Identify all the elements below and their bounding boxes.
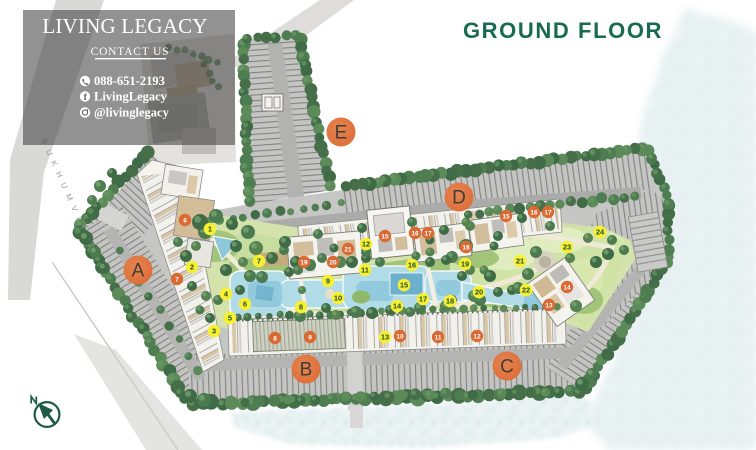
svg-text:GROUND FLOOR: GROUND FLOOR: [463, 18, 663, 43]
svg-text:15: 15: [502, 213, 510, 220]
svg-text:7: 7: [257, 257, 261, 266]
svg-text:12: 12: [473, 333, 481, 340]
svg-text:15: 15: [381, 233, 389, 240]
svg-text:11: 11: [361, 266, 369, 275]
svg-text:14: 14: [393, 302, 402, 311]
svg-text:088-651-2193: 088-651-2193: [94, 74, 165, 88]
svg-text:9: 9: [326, 277, 330, 286]
svg-text:21: 21: [516, 257, 524, 266]
svg-text:15: 15: [400, 281, 408, 290]
svg-text:LIVING LEGACY: LIVING LEGACY: [42, 14, 207, 38]
svg-text:21: 21: [344, 246, 352, 253]
svg-text:13: 13: [545, 302, 553, 309]
svg-text:13: 13: [381, 333, 389, 342]
svg-text:8: 8: [299, 303, 303, 312]
svg-text:19: 19: [461, 260, 469, 269]
svg-text:6: 6: [183, 217, 187, 224]
svg-text:9: 9: [308, 334, 312, 341]
svg-text:16: 16: [411, 230, 419, 237]
svg-text:1: 1: [208, 225, 212, 234]
svg-text:10: 10: [334, 294, 342, 303]
svg-text:18: 18: [462, 244, 470, 251]
svg-text:B: B: [300, 360, 313, 381]
svg-text:6: 6: [243, 300, 247, 309]
svg-text:12: 12: [362, 240, 370, 249]
svg-text:14: 14: [563, 284, 571, 291]
svg-text:LivingLegacy: LivingLegacy: [94, 90, 168, 104]
svg-text:5: 5: [228, 314, 232, 323]
svg-text:18: 18: [446, 297, 454, 306]
svg-text:CONTACT US: CONTACT US: [91, 46, 170, 58]
svg-text:17: 17: [544, 209, 552, 216]
svg-text:17: 17: [419, 295, 427, 304]
svg-text:20: 20: [329, 259, 337, 266]
svg-text:D: D: [452, 188, 466, 209]
svg-text:24: 24: [596, 228, 605, 237]
svg-text:22: 22: [522, 286, 530, 295]
svg-text:3: 3: [212, 327, 216, 336]
svg-text:19: 19: [300, 259, 308, 266]
svg-text:2: 2: [190, 263, 194, 272]
svg-text:10: 10: [396, 333, 404, 340]
svg-text:7: 7: [175, 276, 179, 283]
svg-text:11: 11: [435, 334, 442, 341]
svg-text:A: A: [132, 261, 145, 282]
svg-text:20: 20: [475, 288, 483, 297]
svg-text:8: 8: [273, 335, 277, 342]
svg-text:@livinglegacy: @livinglegacy: [94, 106, 170, 120]
svg-text:16: 16: [408, 261, 416, 270]
svg-text:23: 23: [563, 243, 571, 252]
svg-text:E: E: [335, 123, 348, 144]
svg-text:C: C: [500, 357, 514, 378]
svg-text:17: 17: [424, 230, 432, 237]
svg-text:16: 16: [530, 209, 538, 216]
